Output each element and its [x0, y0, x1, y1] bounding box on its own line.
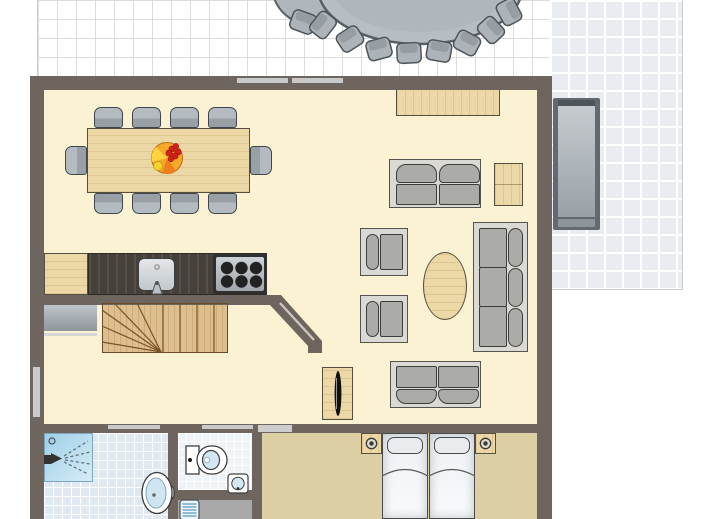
- floor-plan: [0, 0, 713, 519]
- shower-head-icon: [44, 438, 62, 464]
- fruit-bowl: [151, 143, 182, 174]
- corner-basin-icon: [228, 474, 248, 493]
- washbasin-icon: [142, 473, 174, 514]
- shower-spray-lines: [64, 441, 90, 474]
- sink-tap-icon: [152, 265, 162, 294]
- wall-diagonal-highlight: [280, 303, 314, 340]
- bed-blanket-lines: [382, 470, 475, 477]
- detail-overlay: [0, 0, 713, 519]
- outdoor-chair: [396, 42, 421, 63]
- toilet-icon: [186, 446, 227, 474]
- wall-diagonal: [270, 295, 322, 353]
- lamp-icon: [366, 438, 490, 448]
- stove-burners: [221, 262, 262, 288]
- tv-icon: [335, 371, 342, 416]
- outdoor-chair: [365, 36, 393, 62]
- staircase-treads: [102, 303, 228, 353]
- doormat: [180, 500, 199, 519]
- outdoor-chair: [425, 39, 452, 63]
